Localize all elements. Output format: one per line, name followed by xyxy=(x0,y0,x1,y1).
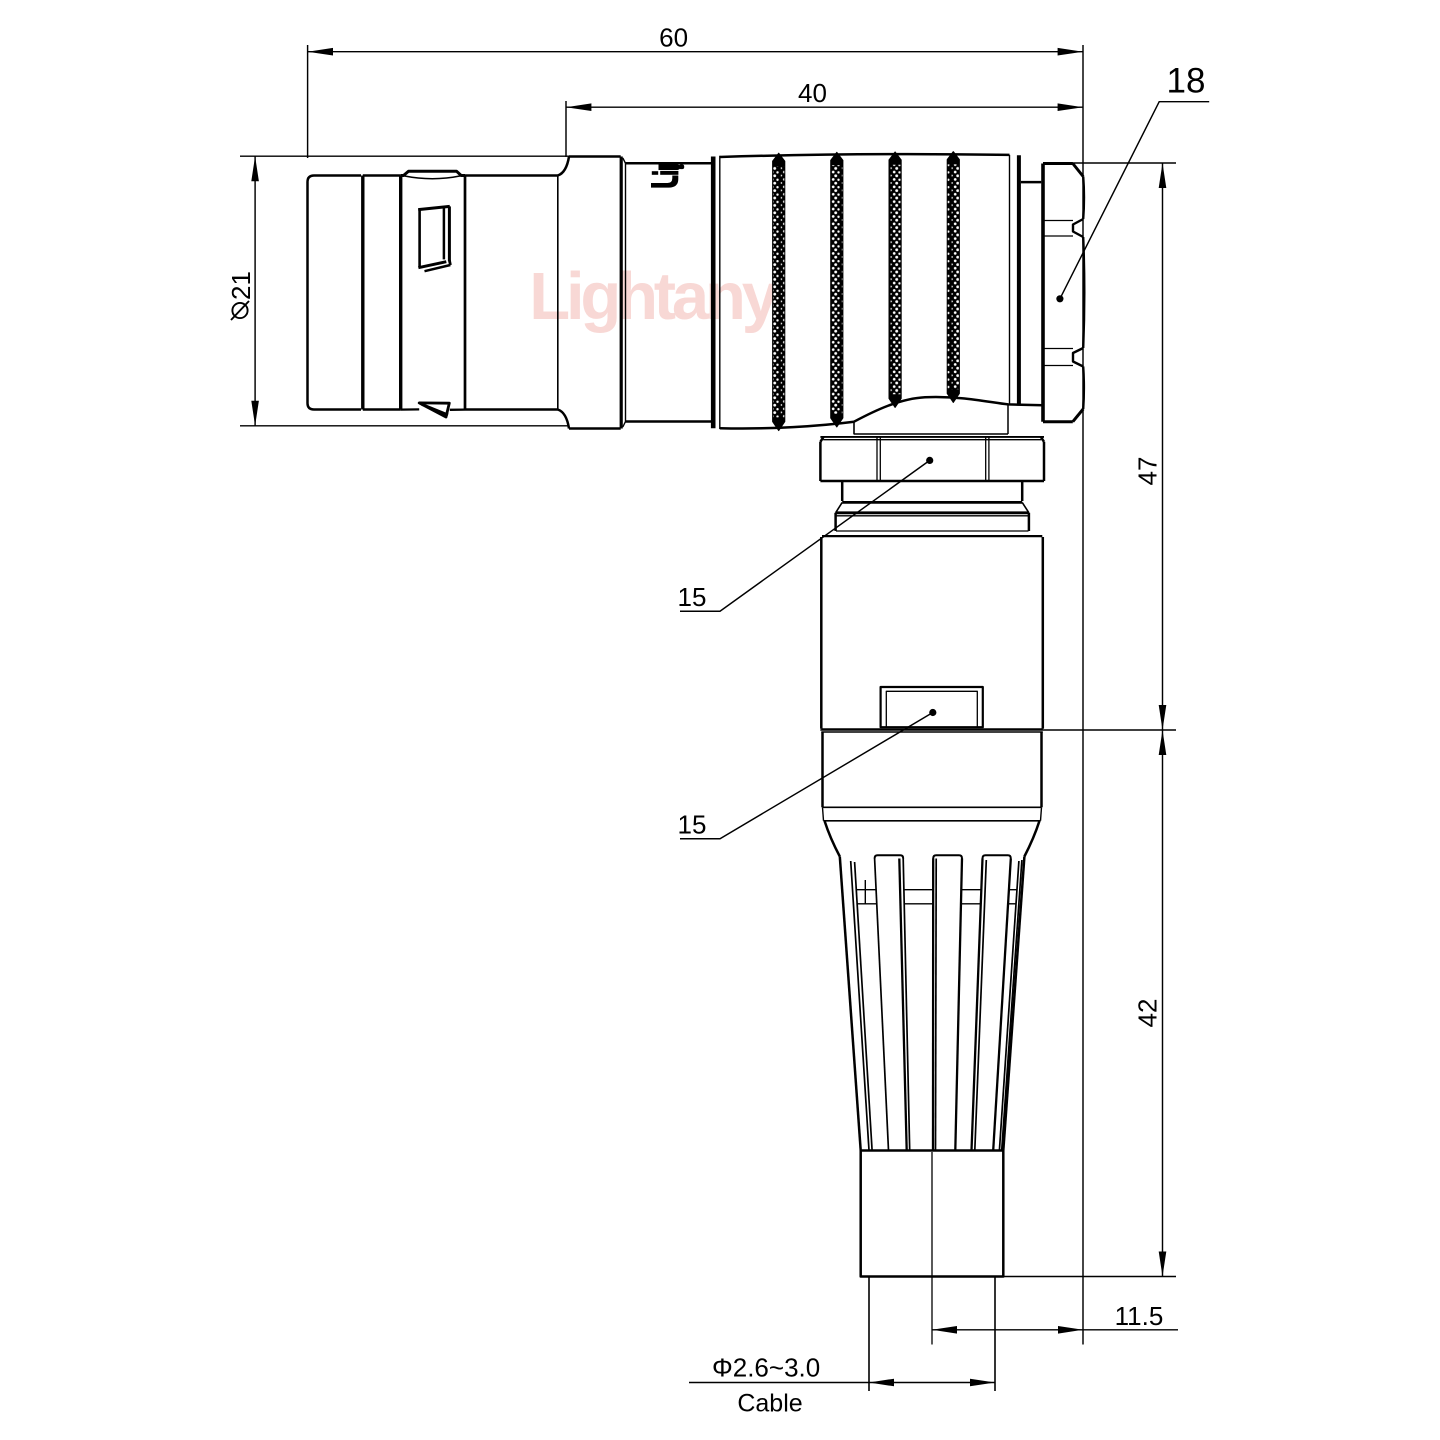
svg-text:47: 47 xyxy=(1133,457,1163,486)
svg-text:Lightany: Lightany xyxy=(529,259,778,334)
svg-text:40: 40 xyxy=(798,78,827,108)
svg-text:21: 21 xyxy=(226,271,256,300)
svg-text:Φ2.6~3.0: Φ2.6~3.0 xyxy=(712,1353,820,1383)
svg-text:18: 18 xyxy=(1167,62,1206,101)
svg-text:15: 15 xyxy=(678,582,707,612)
svg-text:Cable: Cable xyxy=(737,1390,802,1418)
svg-text:15: 15 xyxy=(678,810,707,840)
svg-text:42: 42 xyxy=(1133,999,1163,1028)
svg-text:60: 60 xyxy=(659,23,688,53)
svg-text:11.5: 11.5 xyxy=(1115,1301,1164,1331)
